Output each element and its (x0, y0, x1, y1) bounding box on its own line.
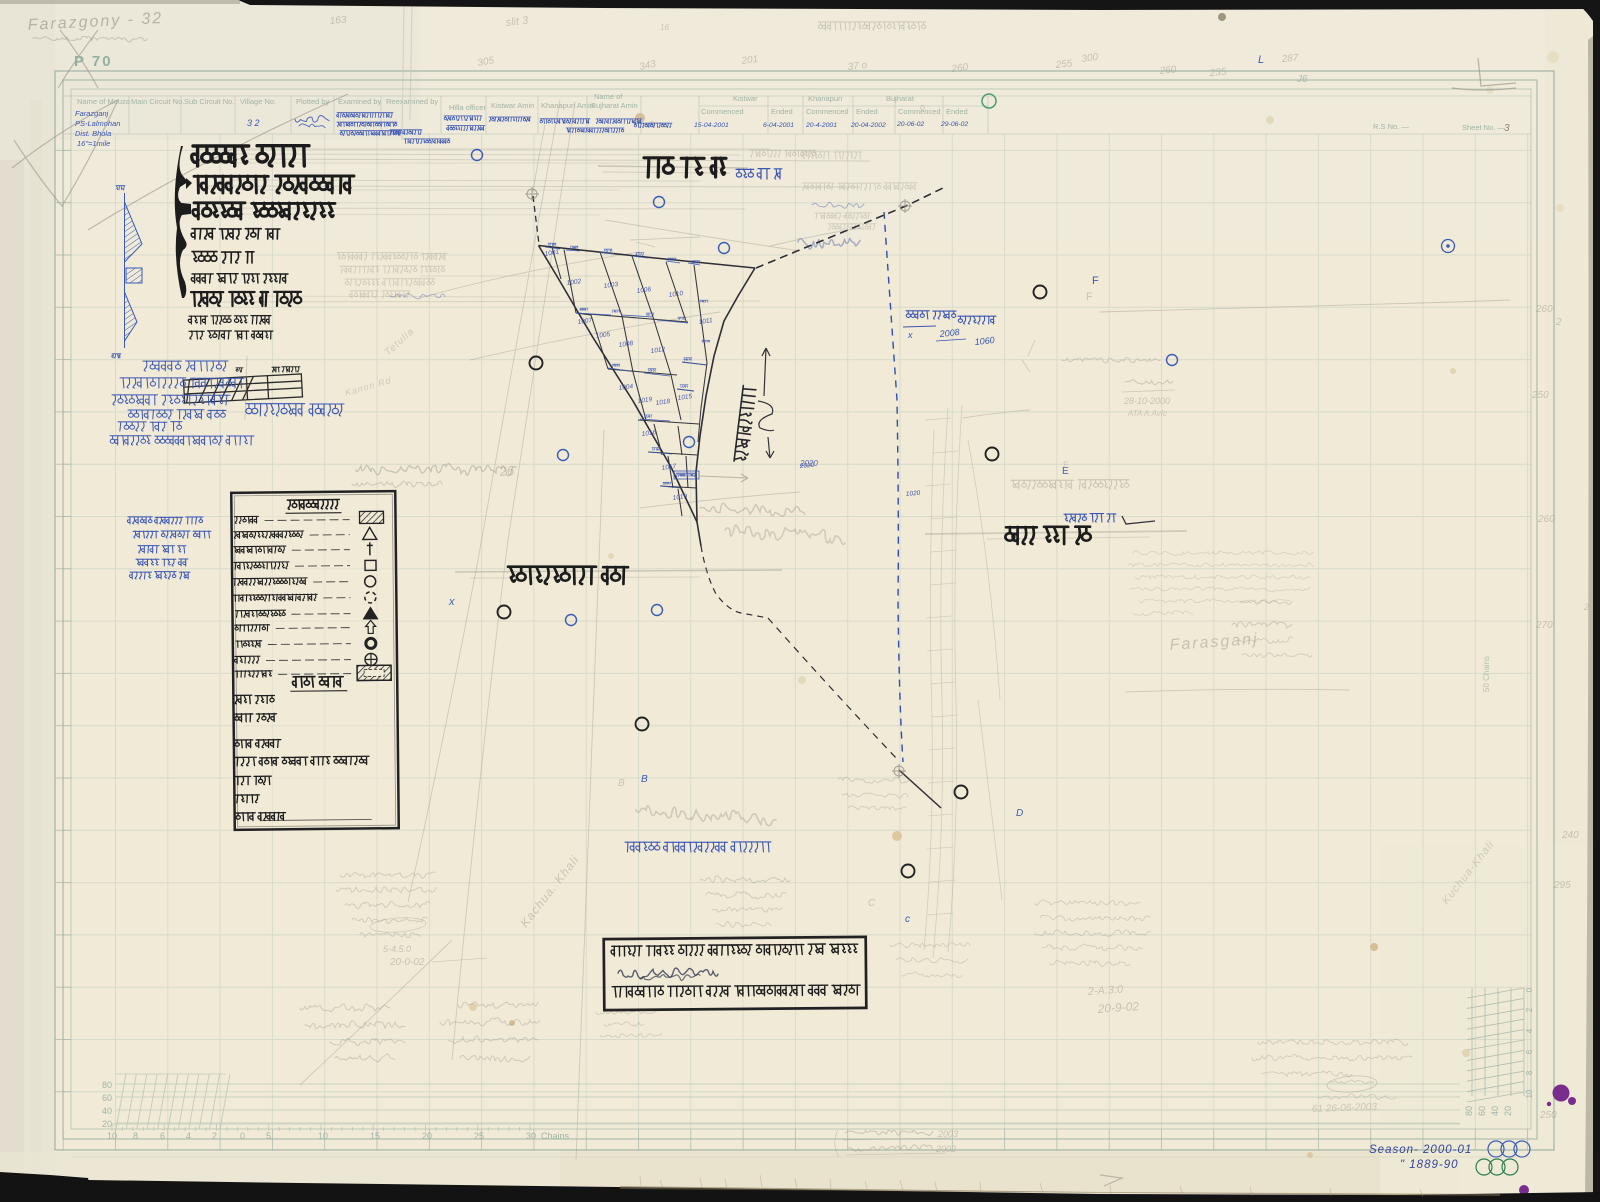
svg-text:c: c (905, 914, 910, 925)
svg-text:260: 260 (1535, 304, 1553, 315)
svg-text:20: 20 (102, 1119, 112, 1129)
svg-text:1060: 1060 (974, 335, 995, 347)
svg-text:2: 2 (1555, 317, 1562, 328)
svg-text:Farazganj: Farazganj (75, 109, 109, 118)
svg-text:4: 4 (1525, 1028, 1534, 1033)
svg-text:20-9-02: 20-9-02 (1096, 999, 1140, 1016)
svg-text:20: 20 (1503, 1106, 1513, 1116)
svg-text:40: 40 (102, 1106, 112, 1116)
svg-text:Sheet No. —: Sheet No. — (1462, 123, 1505, 132)
svg-text:Main Circuit No.: Main Circuit No. (131, 97, 184, 106)
svg-text:Dist. Bhola: Dist. Bhola (75, 129, 111, 138)
svg-text:15: 15 (370, 1131, 380, 1141)
svg-text:270: 270 (1535, 620, 1553, 631)
svg-text:Ended: Ended (771, 107, 793, 116)
svg-text:Bujharat Amin: Bujharat Amin (591, 101, 638, 110)
svg-text:29-06-02: 29-06-02 (940, 121, 968, 128)
svg-text:60: 60 (1477, 1106, 1487, 1116)
svg-text:20-0-02: 20-0-02 (389, 957, 425, 968)
svg-text:6-04-2001: 6-04-2001 (763, 122, 794, 129)
svg-text:26: 26 (498, 463, 515, 479)
svg-text:80: 80 (102, 1080, 112, 1090)
svg-text:10: 10 (107, 1131, 117, 1141)
svg-text:x: x (448, 596, 455, 608)
svg-text:slit 3: slit 3 (505, 15, 530, 29)
svg-text:15-04-2001: 15-04-2001 (694, 122, 729, 129)
svg-text:250: 250 (1539, 1110, 1557, 1121)
svg-text:5-4.5.0: 5-4.5.0 (383, 944, 411, 954)
svg-text:37 o: 37 o (847, 60, 868, 73)
svg-text:20-4-2001: 20-4-2001 (805, 122, 837, 129)
svg-text:Bujharat: Bujharat (886, 94, 915, 103)
svg-text:20: 20 (422, 1131, 432, 1141)
svg-text:Kistwar Amin: Kistwar Amin (491, 101, 534, 110)
svg-text:o: o (920, 102, 925, 112)
svg-text:3: 3 (1504, 123, 1510, 134)
svg-text:Kistwar: Kistwar (733, 94, 758, 103)
svg-text:E: E (1063, 460, 1069, 470)
svg-text:Khanapuri: Khanapuri (808, 94, 843, 103)
svg-text:0: 0 (1525, 987, 1534, 992)
svg-text:287: 287 (1280, 53, 1299, 66)
svg-text:10: 10 (318, 1131, 328, 1141)
svg-text:4: 4 (186, 1131, 191, 1141)
svg-text:Ended: Ended (856, 107, 878, 116)
svg-text:16: 16 (660, 23, 669, 32)
svg-text:80: 80 (1464, 1106, 1474, 1116)
svg-text:x: x (907, 330, 913, 340)
svg-text:P 70: P 70 (74, 53, 113, 70)
svg-text:B: B (641, 774, 648, 785)
svg-text:235: 235 (1208, 67, 1227, 80)
svg-text:Village No.: Village No. (240, 97, 276, 106)
svg-text:163: 163 (329, 15, 347, 27)
svg-text:Commenced: Commenced (701, 107, 744, 116)
svg-text:2: 2 (1583, 602, 1589, 612)
svg-text:2002: 2002 (935, 1144, 956, 1154)
svg-text:C: C (868, 898, 876, 909)
svg-text:40: 40 (1490, 1106, 1500, 1116)
svg-text:D: D (1016, 808, 1023, 819)
svg-text:260: 260 (1537, 514, 1555, 525)
svg-text:Sub Circuit No.: Sub Circuit No. (184, 97, 234, 106)
svg-text:8: 8 (133, 1131, 138, 1141)
svg-text:6: 6 (160, 1131, 165, 1141)
svg-text:J6: J6 (1296, 74, 1308, 85)
svg-text:50 Chains: 50 Chains (1482, 656, 1491, 692)
svg-text:Examined by: Examined by (338, 97, 382, 106)
svg-text:F: F (1086, 291, 1093, 303)
svg-text:295: 295 (1553, 880, 1571, 891)
svg-text:0: 0 (240, 1131, 245, 1141)
svg-text:28-10-2000: 28-10-2000 (1123, 396, 1170, 406)
svg-text:255: 255 (1054, 58, 1073, 71)
svg-text:250: 250 (1531, 390, 1549, 401)
svg-text:10: 10 (1525, 1089, 1534, 1098)
svg-text:8: 8 (1525, 1070, 1534, 1075)
svg-text:260: 260 (1158, 64, 1177, 77)
svg-text:20-06-02: 20-06-02 (896, 121, 924, 128)
svg-text:Name of Mouza: Name of Mouza (77, 97, 131, 106)
svg-text:1020: 1020 (906, 490, 921, 498)
svg-text:L: L (1258, 54, 1264, 66)
svg-text:Ended: Ended (946, 107, 968, 116)
svg-text:R.S No. —: R.S No. — (1373, 122, 1409, 131)
svg-text:B: B (618, 778, 625, 789)
svg-text:Hilla officer: Hilla officer (449, 103, 486, 112)
svg-text:ATA A.AvIc: ATA A.AvIc (1127, 409, 1167, 418)
svg-text:16"=1mile: 16"=1mile (77, 139, 110, 148)
svg-text:2003: 2003 (937, 1129, 958, 1139)
svg-text:6: 6 (1525, 1049, 1534, 1054)
svg-text:Commenced: Commenced (806, 107, 849, 116)
svg-text:25: 25 (474, 1131, 484, 1141)
svg-text:3 2: 3 2 (247, 118, 260, 128)
svg-text:" 1889-90: " 1889-90 (1400, 1159, 1458, 1171)
svg-text:Khanapuri Amin: Khanapuri Amin (541, 101, 594, 110)
svg-text:20-04-2002: 20-04-2002 (850, 122, 886, 129)
svg-text:2: 2 (212, 1131, 217, 1141)
svg-text:61 26-06-2003: 61 26-06-2003 (1312, 1102, 1378, 1115)
svg-text:Season- 2000-01: Season- 2000-01 (1369, 1144, 1472, 1156)
svg-text:Name of: Name of (594, 92, 623, 101)
svg-text:240: 240 (1561, 830, 1579, 841)
svg-text:30: 30 (526, 1131, 536, 1141)
svg-text:Reexamined by: Reexamined by (386, 97, 438, 106)
svg-text:5: 5 (266, 1131, 271, 1141)
svg-text:F: F (1092, 275, 1099, 287)
svg-text:2: 2 (1525, 1007, 1534, 1012)
svg-text:Chains: Chains (541, 1131, 570, 1141)
svg-text:60: 60 (102, 1093, 112, 1103)
svg-text:2020: 2020 (799, 459, 818, 468)
